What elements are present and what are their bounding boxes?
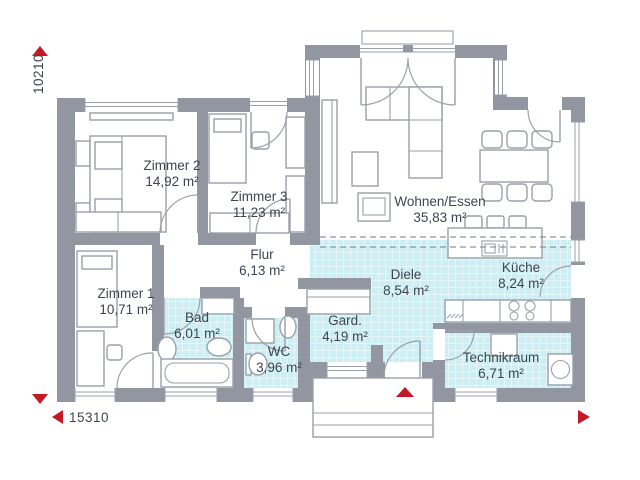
dimension-height: 10210 — [31, 46, 48, 404]
window-living-left — [306, 60, 319, 96]
shelf-unit — [322, 100, 337, 203]
arrow-down-icon — [32, 394, 48, 404]
arrow-left-icon — [52, 410, 63, 424]
svg-text:8,54 m²: 8,54 m² — [383, 283, 429, 298]
kitchen-island — [448, 228, 542, 258]
single-bed — [209, 114, 246, 183]
room-label-zimmer2: Zimmer 2 14,92 m² — [144, 158, 201, 189]
dining-chairs-top — [482, 131, 552, 148]
dimension-width-label: 15310 — [69, 410, 109, 425]
svg-text:6,13 m²: 6,13 m² — [239, 263, 285, 278]
svg-text:3,96 m²: 3,96 m² — [256, 360, 302, 375]
svg-text:Zimmer 2: Zimmer 2 — [144, 158, 201, 173]
entrance-steps — [313, 378, 433, 437]
terrace-step — [362, 31, 453, 44]
room-label-garderobe: Gard. 4,19 m² — [322, 313, 368, 344]
dining-chairs-bottom — [482, 184, 552, 201]
svg-text:Flur: Flur — [250, 247, 274, 262]
wardrobe — [307, 289, 370, 314]
window-dining-right — [571, 122, 585, 202]
svg-text:6,01 m²: 6,01 m² — [174, 326, 220, 341]
window-zimmer2 — [85, 98, 178, 120]
svg-text:Wohnen/Essen: Wohnen/Essen — [394, 194, 485, 209]
washing-machine — [548, 354, 573, 385]
svg-text:Zimmer 3: Zimmer 3 — [231, 189, 288, 204]
armchair — [358, 193, 390, 221]
svg-text:Diele: Diele — [391, 267, 422, 282]
window-kitchen-right — [571, 240, 585, 262]
floor-plan: Zimmer 2 14,92 m² Zimmer 3 11,23 m² Zimm… — [0, 0, 640, 480]
desk — [77, 331, 104, 386]
window-wc — [253, 388, 293, 402]
nightstand — [76, 141, 90, 166]
room-label-zimmer1: Zimmer 1 10,71 m² — [98, 286, 155, 317]
svg-text:Küche: Küche — [502, 260, 540, 275]
room-label-kueche: Küche 8,24 m² — [498, 260, 544, 291]
dining-table — [480, 150, 548, 182]
svg-text:11,23 m²: 11,23 m² — [233, 205, 286, 220]
french-door-stile — [403, 45, 413, 52]
dimension-height-label: 10210 — [31, 54, 46, 94]
floor-plan-drawing: Zimmer 2 14,92 m² Zimmer 3 11,23 m² Zimm… — [0, 0, 640, 480]
coffee-table — [352, 152, 378, 186]
window-living-step — [495, 60, 507, 95]
window-bad — [165, 388, 217, 402]
svg-text:Bad: Bad — [185, 310, 209, 325]
svg-text:Gard.: Gard. — [328, 313, 362, 328]
room-label-flur: Flur 6,13 m² — [239, 247, 285, 278]
room-label-zimmer3: Zimmer 3 11,23 m² — [231, 189, 288, 220]
bathtub — [161, 359, 233, 387]
arrow-right-icon — [578, 410, 590, 424]
window-zimmer1 — [75, 388, 115, 402]
svg-text:WC: WC — [268, 344, 291, 359]
kitchen-counter — [445, 300, 571, 322]
bar-stools — [465, 216, 526, 228]
svg-text:Zimmer 1: Zimmer 1 — [98, 286, 155, 301]
window-garderobe — [327, 362, 367, 378]
window-technikraum — [455, 388, 497, 402]
svg-text:Technikraum: Technikraum — [463, 350, 540, 365]
svg-text:35,83 m²: 35,83 m² — [413, 210, 467, 225]
svg-text:10,71 m²: 10,71 m² — [99, 302, 153, 317]
desk — [286, 117, 305, 168]
svg-text:6,71 m²: 6,71 m² — [478, 366, 524, 381]
svg-text:14,92 m²: 14,92 m² — [145, 174, 199, 189]
desk-chair — [107, 345, 122, 360]
sideboard — [76, 212, 161, 232]
svg-text:4,19 m²: 4,19 m² — [322, 329, 368, 344]
svg-text:8,24 m²: 8,24 m² — [498, 276, 544, 291]
washbasin — [280, 316, 296, 338]
